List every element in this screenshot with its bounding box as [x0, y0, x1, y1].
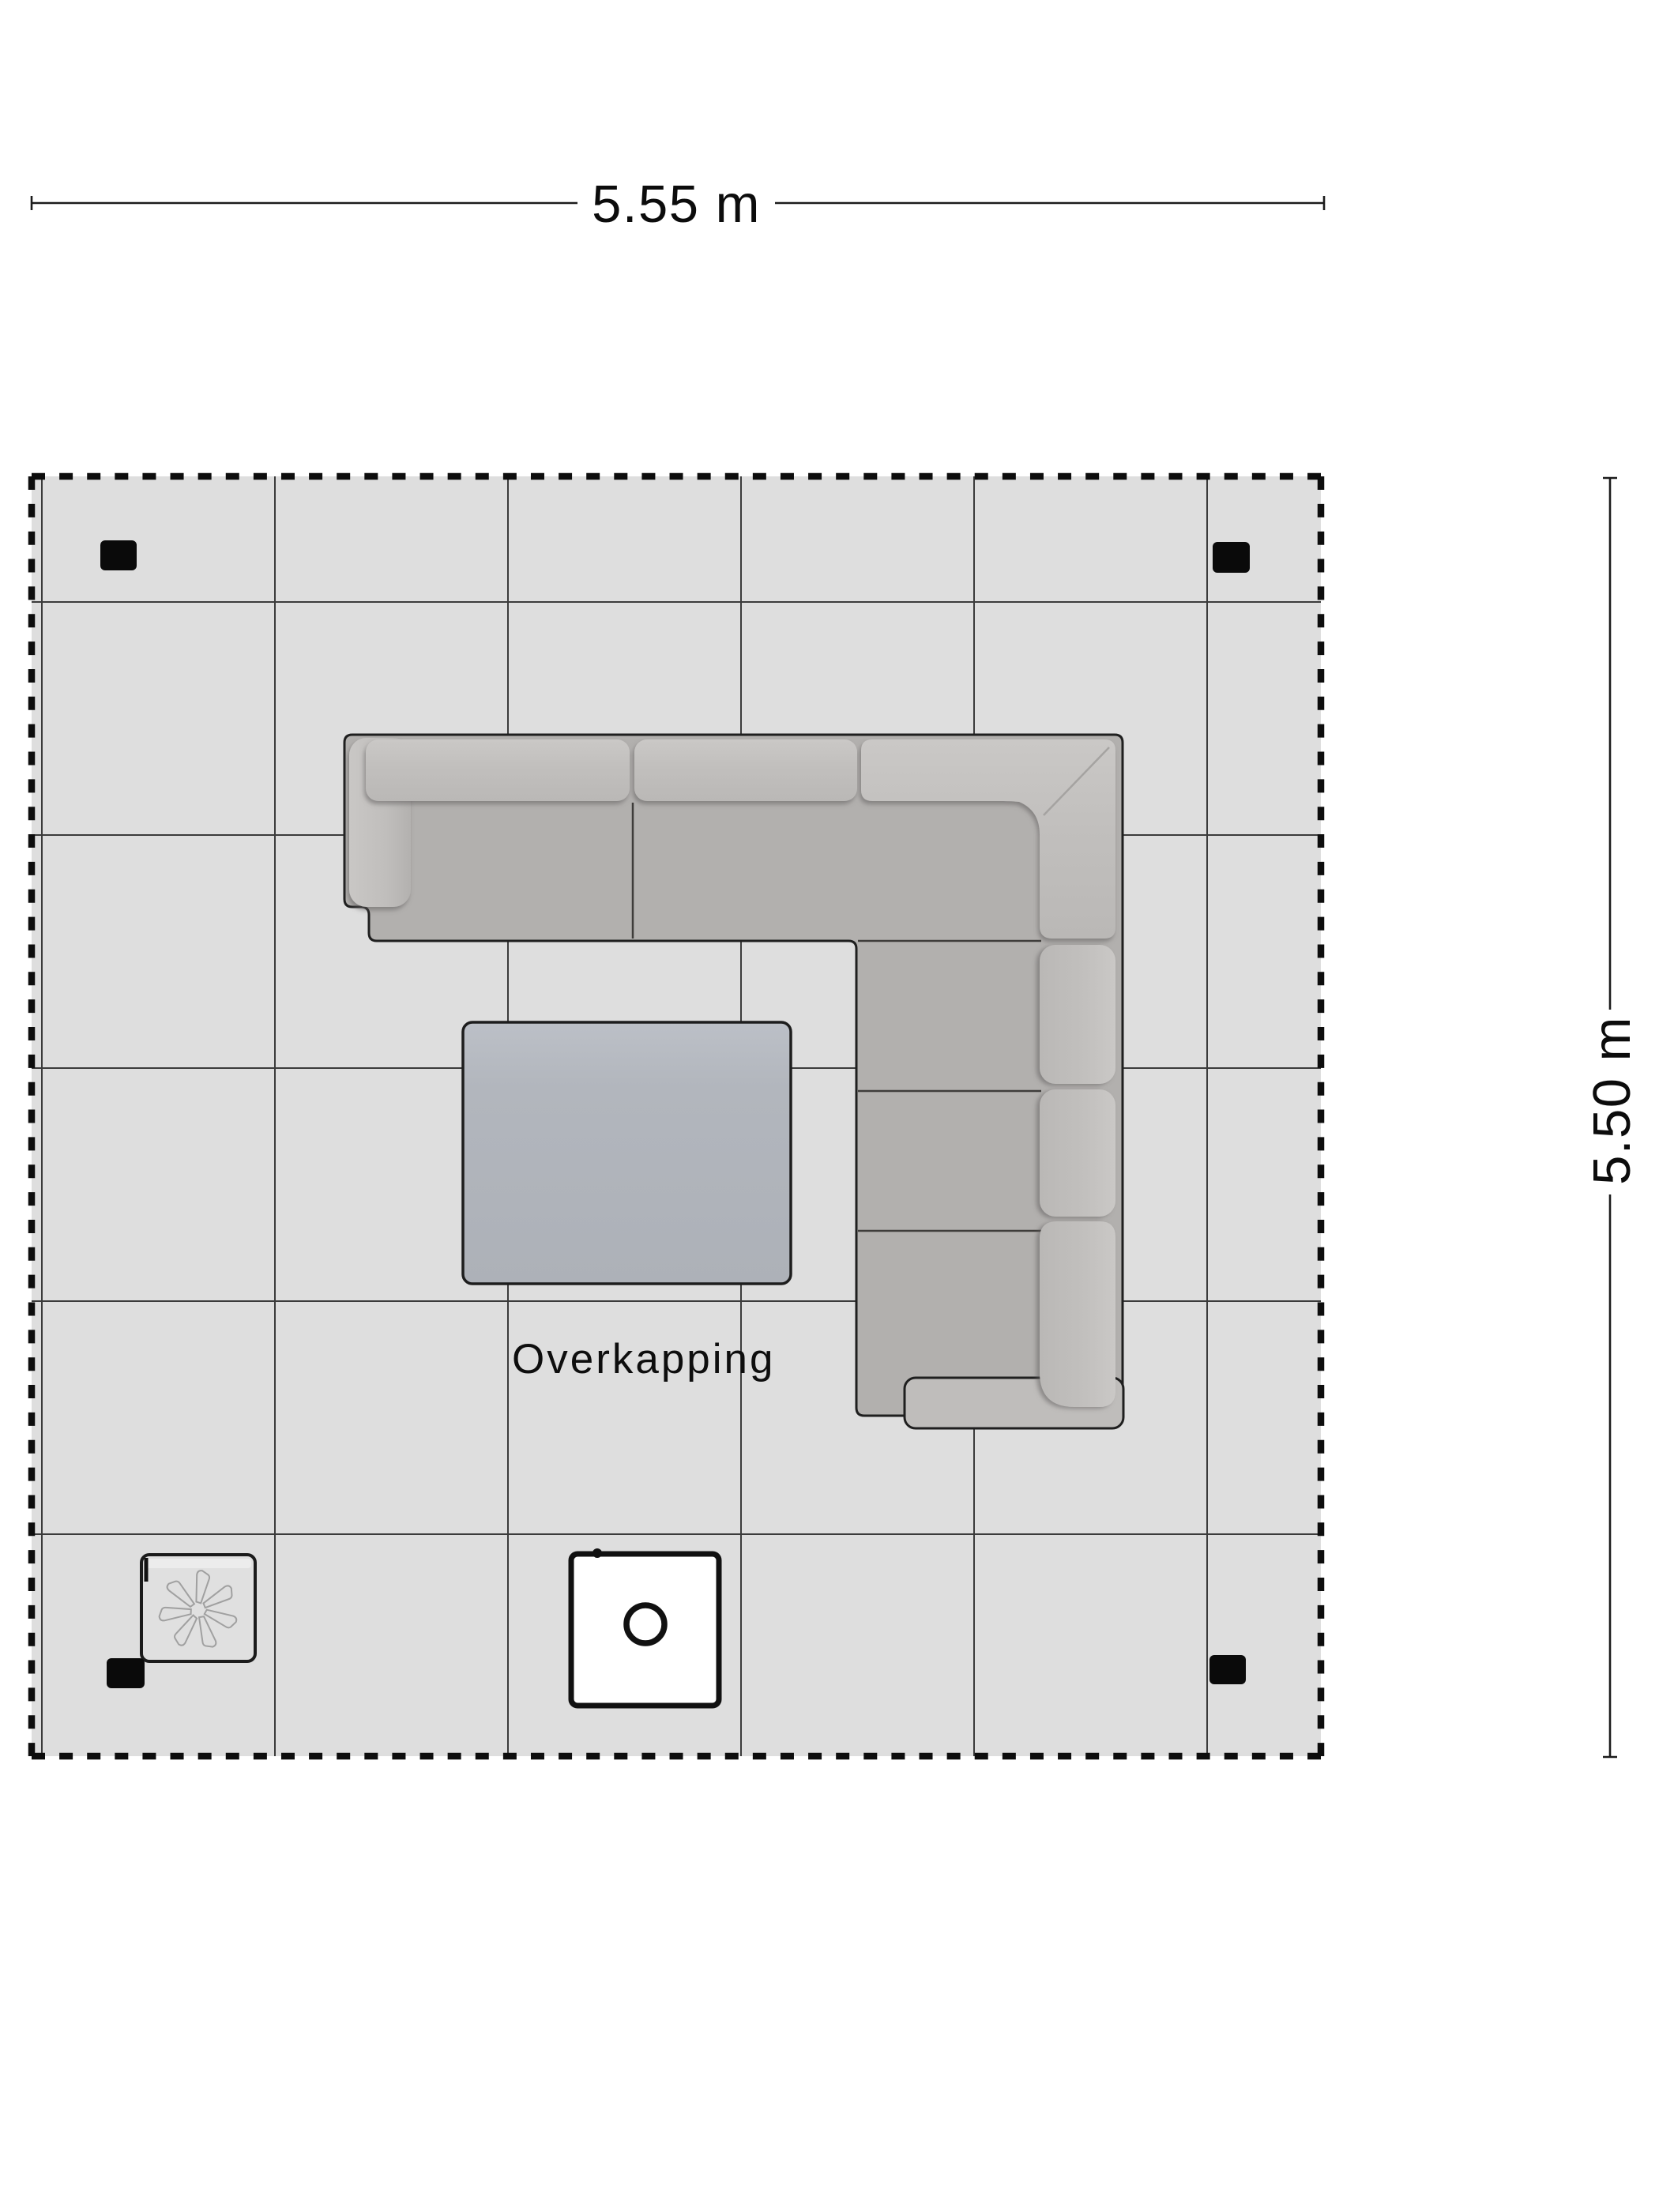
- svg-text:5.50 m: 5.50 m: [1582, 1016, 1642, 1185]
- svg-text:5.55 m: 5.55 m: [592, 175, 761, 234]
- svg-text:Overkapping: Overkapping: [512, 1336, 776, 1382]
